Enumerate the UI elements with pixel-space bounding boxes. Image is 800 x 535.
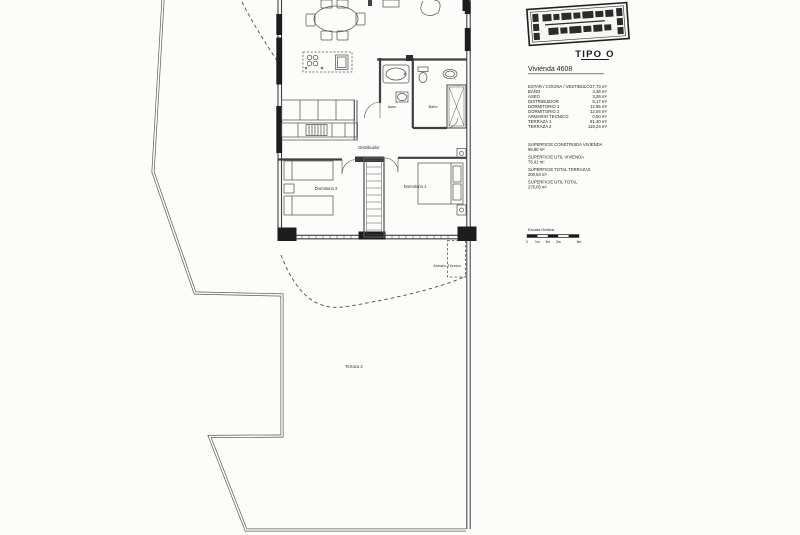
nightstand-dorm1-b: [457, 205, 466, 215]
kitchen-island: [303, 52, 352, 72]
total-area: 98,90 m²: [528, 147, 545, 152]
room-label-terraza2: Terraza 2: [345, 364, 363, 369]
room-label-dormitorio2: Dormitorio 2: [315, 186, 338, 191]
furniture: [282, 0, 467, 237]
dashed-projection-line: [281, 255, 466, 307]
lounge-chair: [421, 0, 440, 16]
scale-tick: 5m: [577, 240, 582, 244]
total-area: 75,41 m²: [528, 160, 545, 165]
armario-tecnico-box: [448, 241, 466, 278]
unit-title: Vivienda 4608: [528, 66, 572, 73]
room-label-bano: Baño: [429, 105, 438, 109]
aseo-sink: [396, 92, 408, 102]
total-area: 276,05 m²: [528, 185, 547, 190]
room-label-distribuidor: Distribuidor: [358, 145, 380, 150]
totals-table: SUPERFICIE CONSTRUIDA VIVIENDA 98,90 m² …: [528, 142, 603, 190]
nightstand-dorm2: [284, 184, 294, 193]
room-row-label: TERRAZA 2: [528, 124, 552, 129]
kitchen-counter: [282, 100, 359, 140]
bed-single-1: [284, 161, 333, 180]
scanned-floorplan-page: Aseo Baño Distribuidor Dormitorio 2 Dorm…: [0, 0, 800, 535]
scale-tick: 0: [526, 240, 528, 244]
shower: [447, 85, 466, 128]
bathtub: [383, 65, 409, 83]
wall-pier-left: [278, 228, 297, 242]
bano-sink: [443, 69, 457, 78]
room-label-armario-tecnico: Armario Técnico: [433, 264, 461, 268]
scale-tick: 1m: [535, 240, 540, 244]
room-row-area: 119,24 m²: [588, 124, 608, 129]
scale-tick: 2m: [545, 240, 550, 244]
title-block: TIPO O Vivienda 4608 ESTAR / COCINA / VE…: [526, 49, 615, 244]
floorplan-canvas: Aseo Baño Distribuidor Dormitorio 2 Dorm…: [0, 0, 800, 535]
dashed-projection-line-top: [242, 2, 278, 62]
scale-tick: 3m: [556, 240, 561, 244]
wall-pier-right: [458, 227, 477, 242]
developer-stamp: [527, 3, 629, 46]
graphic-scale: Escala Gráfica 0 1m 2m 3m 5m: [526, 227, 581, 244]
bed-single-2: [284, 196, 333, 215]
toilet: [418, 67, 428, 83]
terrace-outline: [153, 0, 470, 530]
type-title: TIPO O: [575, 49, 614, 60]
closet-column: [364, 158, 384, 237]
window-left-1: [276, 14, 282, 35]
dining-table: [306, 0, 365, 40]
closet-header-wall: [355, 157, 384, 163]
total-area: 200,64 m²: [528, 172, 547, 177]
room-label-aseo: Aseo: [388, 105, 397, 109]
window-right-2: [465, 28, 471, 51]
room-area-table: ESTAR / COCINA / VESTIBULO 27,73 m² BAÑO…: [528, 84, 608, 129]
window-left-2: [276, 38, 282, 85]
room-label-dormitorio1: Dormitorio 1: [404, 184, 427, 189]
scale-label: Escala Gráfica: [528, 227, 555, 232]
side-table: [383, 0, 399, 7]
